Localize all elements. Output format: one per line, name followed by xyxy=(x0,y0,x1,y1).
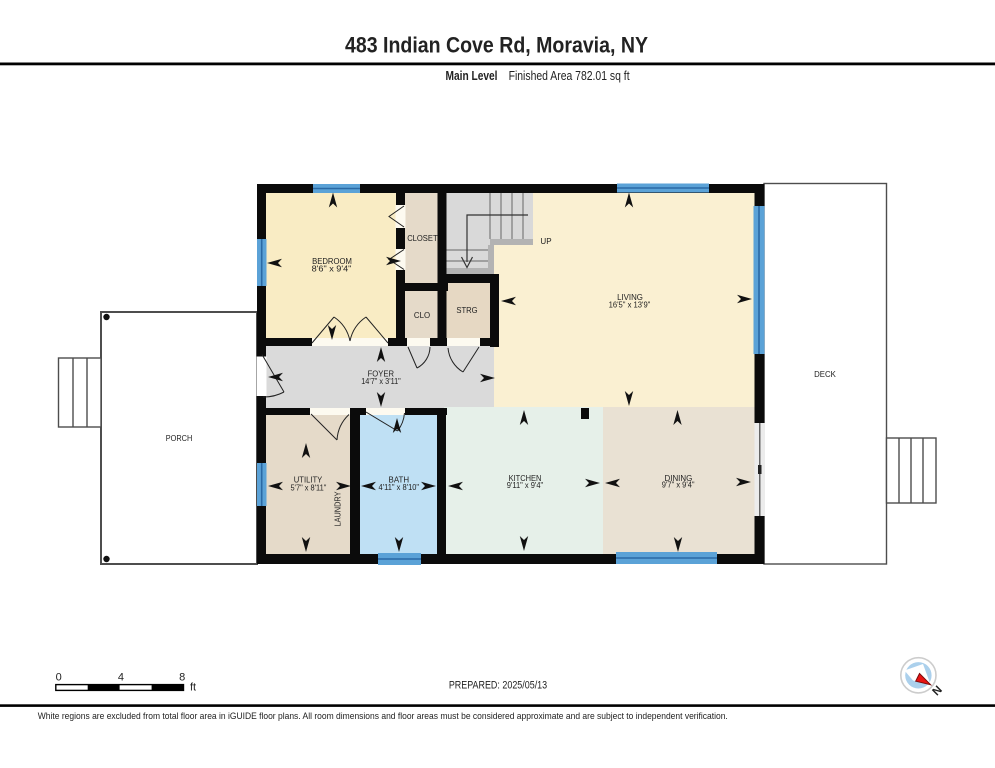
svg-text:9'11" x 9'4": 9'11" x 9'4" xyxy=(507,481,544,490)
svg-text:PORCH: PORCH xyxy=(166,433,193,443)
svg-text:4'11" x 8'10": 4'11" x 8'10" xyxy=(379,483,420,492)
svg-text:ft: ft xyxy=(190,681,196,693)
svg-text:STRG: STRG xyxy=(456,305,478,315)
svg-text:DECK: DECK xyxy=(814,369,836,379)
svg-text:5'7" x 8'11": 5'7" x 8'11" xyxy=(290,484,326,493)
svg-text:8: 8 xyxy=(179,671,185,683)
svg-text:483 Indian Cove Rd, Moravia, N: 483 Indian Cove Rd, Moravia, NY xyxy=(345,33,648,58)
svg-text:9'7" x 9'4": 9'7" x 9'4" xyxy=(662,481,695,490)
svg-text:0: 0 xyxy=(56,671,62,683)
svg-text:Main Level: Main Level xyxy=(446,69,498,83)
svg-text:Finished Area 782.01 sq ft: Finished Area 782.01 sq ft xyxy=(509,69,630,83)
svg-text:4: 4 xyxy=(118,671,124,683)
svg-text:14'7" x 3'11": 14'7" x 3'11" xyxy=(361,377,401,386)
svg-text:8'6" x 9'4": 8'6" x 9'4" xyxy=(312,264,352,273)
svg-text:16'5" x 13'9": 16'5" x 13'9" xyxy=(609,301,651,310)
svg-text:PREPARED: 2025/05/13: PREPARED: 2025/05/13 xyxy=(449,679,547,691)
svg-text:LAUNDRY: LAUNDRY xyxy=(332,491,342,526)
svg-text:CLO: CLO xyxy=(414,310,430,320)
svg-text:UP: UP xyxy=(540,236,551,246)
svg-text:White regions are excluded fro: White regions are excluded from total fl… xyxy=(38,711,728,722)
svg-text:CLOSET: CLOSET xyxy=(407,233,438,243)
